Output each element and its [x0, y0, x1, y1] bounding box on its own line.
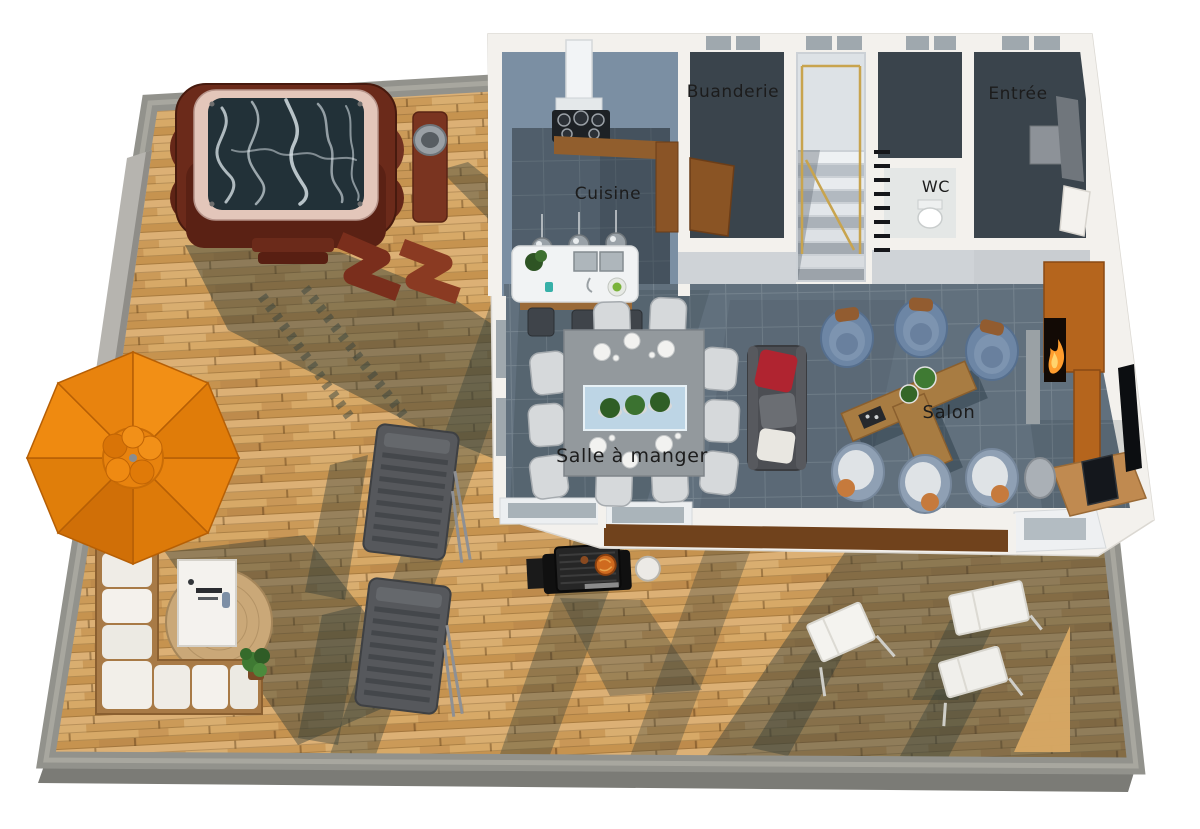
- tub-armchair: [899, 455, 951, 513]
- label-salle-a-manger: Salle à manger: [556, 445, 708, 467]
- tub-armchair: [966, 449, 1018, 507]
- floor-plan-scene: Buanderie Entrée Cuisine WC Salon Salle …: [0, 0, 1200, 829]
- label-entree: Entrée: [988, 84, 1047, 104]
- toilet: [918, 200, 942, 228]
- extractor-hood: [566, 40, 592, 102]
- pantry-cabinet: [656, 142, 678, 232]
- red-cushion: [753, 348, 798, 393]
- monitor: [1082, 455, 1118, 505]
- parasol-pole: [129, 454, 137, 462]
- service-stand: [413, 112, 447, 222]
- wall-face-buanderie: [678, 252, 796, 284]
- kitchen-island: [512, 246, 638, 310]
- desk-chair: [1025, 458, 1055, 498]
- white-cushion: [756, 428, 796, 465]
- parasol: [27, 352, 239, 564]
- label-salon: Salon: [923, 402, 976, 423]
- hallway-floor: [878, 50, 962, 162]
- gray-cushion: [758, 392, 797, 430]
- label-buanderie: Buanderie: [687, 82, 779, 102]
- island-sink-right: [600, 252, 623, 271]
- side-tray: [635, 556, 660, 581]
- house: [488, 34, 1154, 556]
- bbq-food: [595, 554, 616, 575]
- entry-door: [1060, 186, 1090, 236]
- hot-tub-step: [252, 238, 334, 252]
- label-cuisine: Cuisine: [575, 184, 641, 204]
- left-window-2: [496, 398, 506, 456]
- tub-armchair: [895, 297, 947, 357]
- label-wc: WC: [922, 177, 950, 196]
- island-sink-left: [574, 252, 597, 271]
- outdoor-table: [178, 560, 236, 646]
- sofa: [748, 346, 806, 470]
- hot-tub: [170, 84, 404, 264]
- wall-face-wc: [872, 250, 976, 284]
- tub-armchair: [832, 443, 884, 501]
- left-window-1: [496, 320, 506, 378]
- laundry-door: [690, 158, 734, 236]
- floor-plan-render: Buanderie Entrée Cuisine WC Salon Salle …: [0, 0, 1200, 829]
- parasol-rosette: [103, 426, 163, 488]
- hot-tub-step-lower: [258, 252, 328, 264]
- media-shelf: [1026, 330, 1040, 424]
